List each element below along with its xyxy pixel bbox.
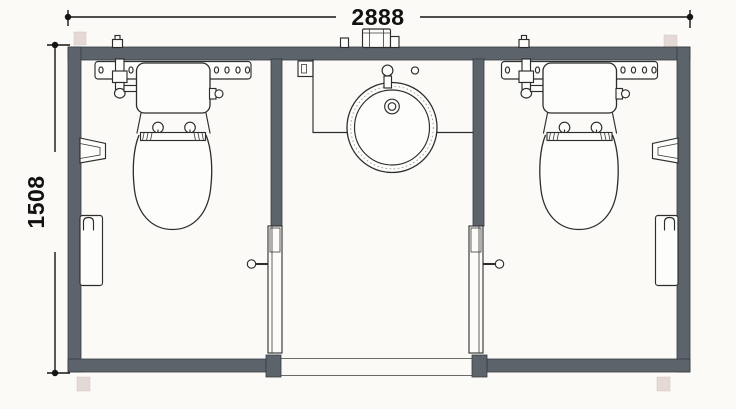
partition-left [271, 59, 282, 226]
drain [385, 99, 400, 114]
door-jamb-left [266, 355, 281, 377]
soap-point [411, 67, 418, 74]
width-dimension-label: 2888 [351, 4, 404, 30]
dim-end-dot [687, 14, 693, 20]
dim-end-dot [52, 42, 58, 48]
door-jamb-right [472, 355, 487, 377]
bottom-wall-right [487, 359, 690, 372]
dim-end-dot [65, 14, 71, 20]
floor-plan-drawing: 2888 1508 [0, 0, 736, 409]
bottom-wall-left [68, 359, 266, 372]
washbasin [347, 83, 437, 173]
tap [382, 65, 393, 88]
left-door-handle [247, 260, 255, 268]
floor-plan-canvas: 2888 1508 [0, 0, 736, 409]
right-wall [677, 47, 690, 372]
wall-box [298, 61, 313, 77]
height-dimension-label: 1508 [23, 175, 49, 228]
right-door-handle [495, 260, 503, 268]
left-wall [68, 47, 81, 372]
dim-end-dot [52, 370, 58, 376]
partition-right [473, 59, 484, 226]
top-wall [68, 47, 690, 60]
